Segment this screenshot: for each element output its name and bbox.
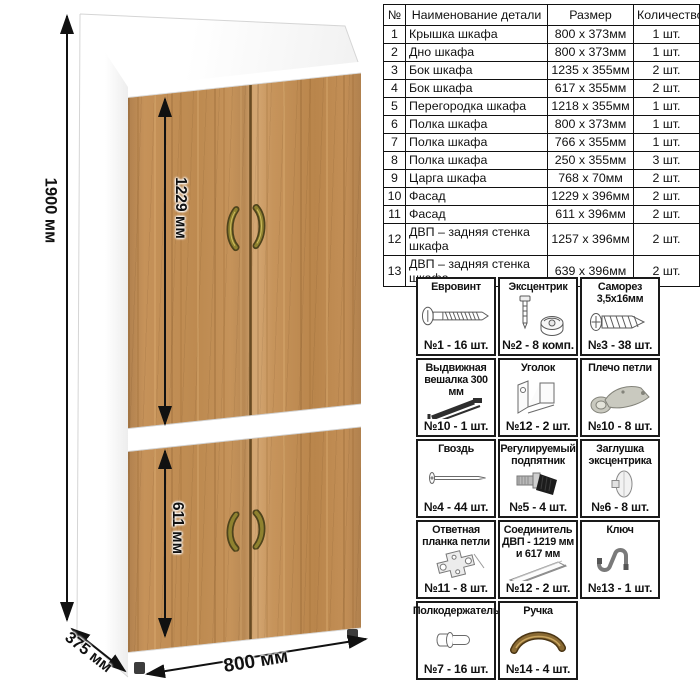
- hardware-grid-empty-cell: [580, 601, 660, 680]
- table-cell: 2 шт.: [634, 80, 700, 98]
- hardware-item-title: Регулируемый подпятник: [500, 443, 575, 467]
- table-header-cell: Размер: [548, 5, 634, 26]
- table-cell: 2: [384, 44, 406, 62]
- table-cell: 10: [384, 188, 406, 206]
- table-cell: Царга шкафа: [406, 170, 548, 188]
- hardware-item: Ручка №14 - 4 шт.: [498, 601, 578, 680]
- table-row: 1Крышка шкафа800 х 373мм1 шт.: [384, 26, 700, 44]
- eccentric-cam-icon: [508, 293, 568, 338]
- table-cell: 12: [384, 224, 406, 256]
- hardware-item: Евровинт №1 - 16 шт.: [416, 277, 496, 356]
- table-cell: 1229 х 396мм: [548, 188, 634, 206]
- table-cell: 3 шт.: [634, 152, 700, 170]
- table-cell: 11: [384, 206, 406, 224]
- eurovint-icon: [421, 293, 491, 338]
- table-cell: 5: [384, 98, 406, 116]
- table-cell: Полка шкафа: [406, 116, 548, 134]
- table-header-cell: №: [384, 5, 406, 26]
- cabinet-front: [128, 63, 361, 677]
- table-cell: 2 шт.: [634, 188, 700, 206]
- hardware-item-count: №5 - 4 шт.: [509, 500, 567, 514]
- lower-section-dimension-label: 611 мм: [168, 498, 186, 558]
- hardware-item-title: Выдвижная вешалка 300 мм: [419, 362, 493, 398]
- table-cell: 1 шт.: [634, 26, 700, 44]
- cam-cover-icon: [600, 467, 640, 500]
- furniture-spec-sheet: { "drawing": { "dimensions": { "height_l…: [0, 0, 700, 700]
- table-cell: 617 х 355мм: [548, 80, 634, 98]
- hardware-item-title: Эксцентрик: [508, 281, 567, 293]
- table-cell: 800 х 373мм: [548, 26, 634, 44]
- hardware-item-title: Ключ: [606, 524, 633, 536]
- table-cell: 8: [384, 152, 406, 170]
- hardware-item-title: Ручка: [523, 605, 552, 617]
- table-cell: Полка шкафа: [406, 152, 548, 170]
- table-cell: 2 шт.: [634, 206, 700, 224]
- table-row: 6Полка шкафа800 х 373мм1 шт.: [384, 116, 700, 134]
- table-row: 4Бок шкафа617 х 355мм2 шт.: [384, 80, 700, 98]
- table-cell: ДВП – задняя стенка шкафа: [406, 224, 548, 256]
- shelf-pin-icon: [428, 617, 484, 662]
- hardware-item-count: №11 - 8 шт.: [424, 581, 488, 595]
- hardware-item: Полкодержатель №7 - 16 шт.: [416, 601, 496, 680]
- table-cell: 3: [384, 62, 406, 80]
- table-cell: 611 х 396мм: [548, 206, 634, 224]
- hardware-item-count: №4 - 44 шт.: [424, 500, 488, 514]
- hardware-item: Выдвижная вешалка 300 мм №10 - 1 шт.: [416, 358, 496, 437]
- table-header-row: №Наименование деталиРазмерКоличество: [384, 5, 700, 26]
- table-cell: 766 х 355мм: [548, 134, 634, 152]
- table-cell: 250 х 355мм: [548, 152, 634, 170]
- cabinet-side-panel: [77, 14, 128, 677]
- table-cell: Полка шкафа: [406, 134, 548, 152]
- table-cell: Перегородка шкафа: [406, 98, 548, 116]
- hinge-plate-icon: [424, 548, 488, 581]
- table-cell: 800 х 373мм: [548, 44, 634, 62]
- hardware-item: Соединитель ДВП - 1219 мм и 617 мм №12 -…: [498, 520, 578, 599]
- table-cell: 800 х 373мм: [548, 116, 634, 134]
- hardware-item: Саморез 3,5х16мм №3 - 38 шт.: [580, 277, 660, 356]
- upper-door-gap: [249, 85, 252, 415]
- table-cell: 2 шт.: [634, 224, 700, 256]
- table-cell: 1218 х 355мм: [548, 98, 634, 116]
- hardware-item-title: Заглушка эксцентрика: [583, 443, 657, 467]
- hardware-item-count: №7 - 16 шт.: [424, 662, 488, 676]
- hardware-item-title: Плечо петли: [588, 362, 652, 374]
- table-cell: Крышка шкафа: [406, 26, 548, 44]
- table-row: 11Фасад611 х 396мм2 шт.: [384, 206, 700, 224]
- hardware-item: Эксцентрик №2 - 8 комп.: [498, 277, 578, 356]
- hardware-item-title: Соединитель ДВП - 1219 мм и 617 мм: [501, 524, 575, 560]
- hardware-item-count: №10 - 1 шт.: [424, 419, 488, 433]
- nail-icon: [424, 455, 488, 500]
- table-row: 2Дно шкафа800 х 373мм1 шт.: [384, 44, 700, 62]
- table-row: 8Полка шкафа250 х 355мм3 шт.: [384, 152, 700, 170]
- adjustable-foot-icon: [509, 467, 567, 500]
- table-cell: 9: [384, 170, 406, 188]
- table-header-cell: Наименование детали: [406, 5, 548, 26]
- lower-doors: [128, 428, 361, 652]
- hardware-item: Ответная планка петли №11 - 8 шт.: [416, 520, 496, 599]
- cabinet-foot: [134, 662, 145, 674]
- hdf-connector-icon: [506, 560, 570, 581]
- table-cell: 1257 х 396мм: [548, 224, 634, 256]
- table-cell: 13: [384, 255, 406, 287]
- hardware-item: Регулируемый подпятник №5 - 4 шт.: [498, 439, 578, 518]
- table-cell: Бок шкафа: [406, 80, 548, 98]
- upper-right-door-handle: [252, 202, 268, 250]
- hardware-item: Заглушка эксцентрика №6 - 8 шт.: [580, 439, 660, 518]
- upper-left-door-handle: [224, 205, 240, 253]
- hardware-item-title: Уголок: [521, 362, 555, 374]
- hardware-item-count: №3 - 38 шт.: [588, 338, 652, 352]
- hardware-item-count: №12 - 2 шт.: [506, 419, 570, 433]
- parts-table: №Наименование деталиРазмерКоличество 1Кр…: [383, 4, 700, 287]
- hardware-item-title: Саморез 3,5х16мм: [583, 281, 657, 305]
- hardware-item-count: №2 - 8 комп.: [502, 338, 574, 352]
- table-cell: 1 шт.: [634, 44, 700, 62]
- screw-icon: [588, 305, 652, 338]
- table-row: 9Царга шкафа768 х 70мм2 шт.: [384, 170, 700, 188]
- table-cell: 1 шт.: [634, 116, 700, 134]
- table-cell: 1235 х 355мм: [548, 62, 634, 80]
- table-header-cell: Количество: [634, 5, 700, 26]
- hex-key-icon: [591, 536, 649, 581]
- table-row: 10Фасад1229 х 396мм2 шт.: [384, 188, 700, 206]
- table-cell: 1 шт.: [634, 98, 700, 116]
- table-row: 7Полка шкафа766 х 355мм1 шт.: [384, 134, 700, 152]
- table-cell: 1 шт.: [634, 134, 700, 152]
- hardware-item-title: Ответная планка петли: [419, 524, 493, 548]
- hardware-grid: Евровинт №1 - 16 шт. Эксцентрик №2 - 8 к…: [416, 277, 660, 680]
- hardware-item-title: Евровинт: [431, 281, 481, 293]
- table-cell: Дно шкафа: [406, 44, 548, 62]
- hardware-item: Плечо петли №10 - 8 шт.: [580, 358, 660, 437]
- parts-table-body: 1Крышка шкафа800 х 373мм1 шт.2Дно шкафа8…: [384, 26, 700, 287]
- corner-bracket-icon: [510, 374, 566, 419]
- hardware-item: Ключ №13 - 1 шт.: [580, 520, 660, 599]
- hardware-item-count: №12 - 2 шт.: [506, 581, 570, 595]
- table-cell: 2 шт.: [634, 62, 700, 80]
- cabinet-foot: [347, 629, 358, 639]
- table-row: 12ДВП – задняя стенка шкафа1257 х 396мм2…: [384, 224, 700, 256]
- height-dimension-label: 1900 мм: [41, 175, 60, 247]
- hardware-item-count: №14 - 4 шт.: [506, 662, 570, 676]
- upper-doors: [128, 74, 361, 428]
- table-cell: Фасад: [406, 206, 548, 224]
- table-cell: 7: [384, 134, 406, 152]
- table-cell: Фасад: [406, 188, 548, 206]
- table-cell: 1: [384, 26, 406, 44]
- hinge-arm-icon: [587, 374, 653, 419]
- table-cell: Бок шкафа: [406, 62, 548, 80]
- table-row: 5Перегородка шкафа1218 х 355мм1 шт.: [384, 98, 700, 116]
- hardware-item-count: №10 - 8 шт.: [588, 419, 652, 433]
- lower-right-door-handle: [252, 508, 268, 550]
- hardware-item: Гвоздь №4 - 44 шт.: [416, 439, 496, 518]
- upper-section-dimension-label: 1229 мм: [171, 172, 189, 244]
- table-cell: 6: [384, 116, 406, 134]
- table-cell: 4: [384, 80, 406, 98]
- table-row: 3Бок шкафа1235 х 355мм2 шт.: [384, 62, 700, 80]
- table-cell: 2 шт.: [634, 170, 700, 188]
- hardware-item-count: №13 - 1 шт.: [588, 581, 652, 595]
- hardware-item-title: Гвоздь: [438, 443, 474, 455]
- pullout-hanger-icon: [424, 398, 488, 419]
- table-cell: 768 х 70мм: [548, 170, 634, 188]
- hardware-item-count: №6 - 8 шт.: [591, 500, 649, 514]
- door-handle-icon: [506, 617, 570, 662]
- hardware-item-count: №1 - 16 шт.: [424, 338, 488, 352]
- lower-left-door-handle: [224, 511, 240, 553]
- hardware-item-title: Полкодержатель: [413, 605, 499, 617]
- hardware-item: Уголок №12 - 2 шт.: [498, 358, 578, 437]
